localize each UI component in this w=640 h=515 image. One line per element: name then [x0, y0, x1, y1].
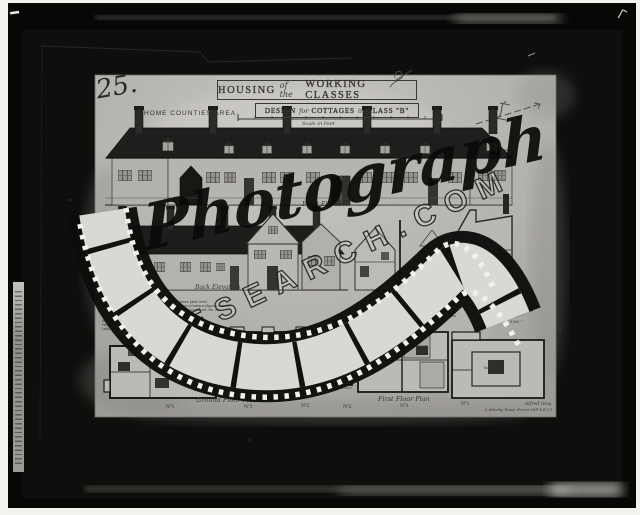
unit-number-label: Nº1 — [166, 404, 174, 410]
archival-photo-scan: 25. HOME COUNTIES AREA HOUSING of the WO… — [0, 0, 640, 515]
subtitle-word-5: CLASS "B" — [367, 107, 409, 115]
subtitle-box: DESIGN for COTTAGES in CLASS "B" — [255, 103, 419, 118]
spec-value: 1,912 cub feet — [510, 309, 556, 313]
unit-number-label: Nº3 — [400, 403, 408, 409]
room-label-entrance: Entrance — [228, 386, 244, 390]
cubical-contents-heading: Cubical Contents — [404, 302, 556, 307]
room-label-bedroom: Bedroom — [360, 344, 376, 348]
signature-address: 5 Allenby Road, Forest Hill S.E.23 — [452, 407, 552, 412]
title-word-3: WORKING CLASSES — [305, 79, 416, 101]
title-word-1: HOUSING — [218, 85, 276, 96]
unit-number-label: Nº3 — [244, 404, 252, 410]
scale-caption: Scale in Feet — [302, 121, 335, 127]
subtitle-word-4: in — [358, 107, 364, 115]
spec-item: One of semi-detached houses — [396, 309, 504, 313]
subtitle-word-1: DESIGN — [265, 107, 296, 115]
title-word-2: of the — [280, 81, 301, 99]
cubical-contents-notes: Cubical Contents One of semi-detached ho… — [396, 302, 556, 324]
spec-value: 5,040 ″ ″ — [510, 320, 556, 324]
unit-number-label: Nº2 — [343, 404, 351, 410]
subtitle-word-2: for — [299, 107, 308, 115]
edge-label-sticker — [13, 282, 24, 472]
room-label-bedroom: Bedroom — [484, 366, 500, 370]
spec-item: House with three bedrooms — [396, 320, 504, 324]
title-box: HOUSING of the WORKING CLASSES — [217, 80, 417, 100]
subtitle-word-3: COTTAGES — [311, 107, 354, 115]
region-label: HOME COUNTIES AREA — [144, 110, 236, 117]
architect-signature: Alfred Gow, 5 Allenby Road, Forest Hill … — [452, 402, 552, 412]
edge-scratch-mark — [618, 10, 627, 18]
room-label-bedroom: Bedroom — [412, 344, 428, 348]
ground-floor-plan-label: Ground Floor Plan — [196, 396, 257, 404]
corner-film-notch — [10, 11, 19, 15]
spec-item: Terrace house ground and first floors — [396, 314, 504, 318]
first-floor-plan-label: First Floor Plan — [378, 395, 430, 403]
room-label-entrance: Entrance — [336, 386, 352, 390]
spec-value: 2,840 ″ ″ — [510, 314, 556, 318]
unit-number-label: Nº2 — [301, 403, 309, 409]
